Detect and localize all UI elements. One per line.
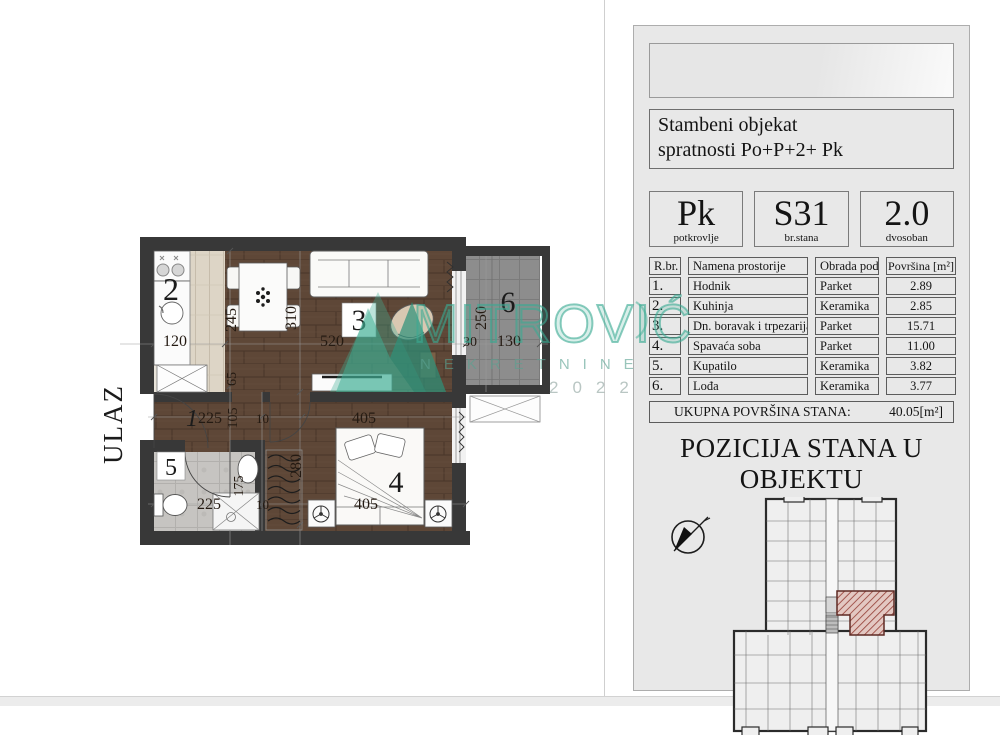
table-cell-name: Lođa (688, 377, 808, 395)
room-number: 2 (163, 271, 179, 307)
table-cell-num: 1. (649, 277, 681, 295)
room-number: 1 (186, 406, 198, 432)
table-cell-name: Spavaća soba (688, 337, 808, 355)
floor-plan: 120 245 310 520 65 105 225 10 280 175 22… (0, 0, 610, 706)
areas-table: R.br. Namena prostorije Obrada poda Povr… (649, 257, 954, 395)
table-cell-area: 3.77 (886, 377, 956, 395)
stat-value: S31 (755, 194, 847, 232)
toilet-icon (154, 494, 163, 516)
stat-caption: br.stana (755, 232, 847, 244)
position-title: POZICIJA STANA U OBJEKTU (634, 433, 969, 495)
dim-label: 10 (256, 411, 269, 426)
total-value: 40.05[m²] (889, 404, 943, 420)
loggia-cabinet (470, 396, 540, 422)
position-plan (634, 497, 969, 735)
table-cell-floor: Keramika (815, 357, 879, 375)
dim-label: 10 (256, 497, 269, 512)
dim-label: 310 (283, 306, 300, 330)
dim-label: 225 (198, 410, 222, 427)
table-cell-num: 4. (649, 337, 681, 355)
dim-label: 250 (473, 306, 490, 330)
dim-label: 30 (463, 335, 477, 350)
table-cell-num: 6. (649, 377, 681, 395)
room-number: 6 (501, 286, 516, 319)
dim-label: 520 (320, 333, 344, 350)
dim-label: 120 (163, 333, 187, 350)
stat-caption: dvosoban (861, 232, 953, 244)
table-cell-area: 2.89 (886, 277, 956, 295)
table-header-cell: Površina [m²] (886, 257, 956, 275)
stat-box-number: S31 br.stana (754, 191, 848, 247)
table-header-cell: R.br. (649, 257, 681, 275)
table-cell-num: 5. (649, 357, 681, 375)
building-outline (734, 497, 926, 735)
table-cell-num: 2. (649, 297, 681, 315)
bedroom-window (452, 408, 466, 463)
total-label: UKUPNA POVRŠINA STANA: (674, 404, 851, 420)
room-number: 5 (165, 455, 177, 481)
dim-label: 105 (226, 408, 241, 429)
dim-label: 405 (352, 410, 376, 427)
dim-label: 280 (288, 454, 305, 478)
table-cell-name: Dn. boravak i trpezarija (688, 317, 808, 335)
table-cell-area: 11.00 (886, 337, 956, 355)
dim-label: 130 (497, 333, 521, 350)
stat-boxes: Pk potkrovlje S31 br.stana 2.0 dvosoban (649, 191, 954, 247)
entrance-label: ULAZ (98, 384, 128, 464)
table-cell-area: 2.85 (886, 297, 956, 315)
table-cell-num: 3. (649, 317, 681, 335)
stat-value: Pk (650, 194, 742, 232)
building-title-line2: spratnosti Po+P+2+ Pk (658, 138, 945, 163)
building-title-line1: Stambeni objekat (658, 113, 945, 138)
separator-line (604, 0, 605, 706)
table-cell-name: Kupatilo (688, 357, 808, 375)
stat-caption: potkrovlje (650, 232, 742, 244)
table-header-cell: Namena prostorije (688, 257, 808, 275)
info-panel: Stambeni objekat spratnosti Po+P+2+ Pk P… (633, 25, 970, 691)
table-cell-floor: Keramika (815, 297, 879, 315)
building-title: Stambeni objekat spratnosti Po+P+2+ Pk (649, 109, 954, 169)
dim-label: 225 (197, 496, 221, 513)
stat-box-type: 2.0 dvosoban (860, 191, 954, 247)
stat-value: 2.0 (861, 194, 953, 232)
stat-box-floor: Pk potkrovlje (649, 191, 743, 247)
table-cell-floor: Keramika (815, 377, 879, 395)
table-cell-area: 3.82 (886, 357, 956, 375)
table-header-cell: Obrada poda (815, 257, 879, 275)
table-cell-name: Hodnik (688, 277, 808, 295)
table-cell-floor: Parket (815, 277, 879, 295)
sofa (310, 251, 428, 297)
compass-icon (672, 517, 710, 553)
room-number: 3 (352, 304, 367, 337)
dim-label: 175 (232, 476, 247, 497)
room-number: 4 (389, 466, 404, 499)
total-row: UKUPNA POVRŠINA STANA: 40.05[m²] (649, 401, 954, 423)
table-cell-area: 15.71 (886, 317, 956, 335)
dim-label: 245 (223, 308, 240, 332)
logo-placeholder (649, 43, 954, 98)
table-cell-floor: Parket (815, 317, 879, 335)
dim-label: 405 (354, 496, 378, 513)
table-cell-floor: Parket (815, 337, 879, 355)
table-cell-name: Kuhinja (688, 297, 808, 315)
dim-label: 65 (225, 372, 240, 386)
